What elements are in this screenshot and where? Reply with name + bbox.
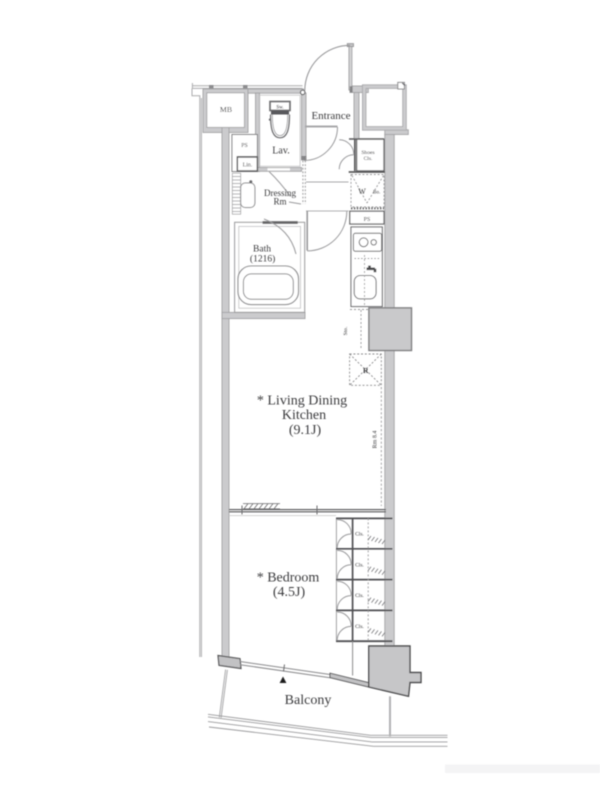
svg-text:(9.1J): (9.1J) (289, 423, 322, 438)
svg-text:Sto.: Sto. (343, 326, 349, 335)
svg-text:Balcony: Balcony (285, 693, 332, 708)
svg-text:Shoes: Shoes (361, 150, 374, 156)
svg-text:* Living Dining: * Living Dining (257, 394, 347, 409)
svg-text:Cls.: Cls. (355, 624, 364, 630)
svg-text:Cls.: Cls. (364, 156, 373, 162)
svg-text:Kitchen: Kitchen (282, 408, 326, 423)
svg-text:Rm 8.4: Rm 8.4 (373, 431, 379, 449)
svg-text:Bo.: Bo. (373, 190, 380, 195)
svg-text:Cls.: Cls. (355, 593, 364, 599)
svg-text:R: R (363, 366, 369, 375)
svg-text:PS: PS (364, 217, 371, 223)
svg-text:Rm: Rm (273, 197, 286, 207)
svg-text:Lin.: Lin. (243, 162, 253, 168)
svg-text:* Bedroom: * Bedroom (257, 571, 320, 586)
svg-text:(4.5J): (4.5J) (273, 585, 306, 600)
svg-text:PS: PS (241, 143, 247, 149)
svg-text:Bath: Bath (253, 245, 271, 255)
svg-text:(1216): (1216) (250, 254, 275, 265)
svg-text:Cls.: Cls. (355, 562, 364, 568)
svg-text:Sw.: Sw. (276, 106, 283, 111)
svg-text:W: W (358, 187, 366, 196)
svg-text:MB: MB (220, 105, 232, 114)
svg-text:Lav.: Lav. (272, 146, 289, 157)
svg-text:Cls.: Cls. (355, 532, 364, 538)
svg-text:Entrance: Entrance (311, 110, 350, 122)
